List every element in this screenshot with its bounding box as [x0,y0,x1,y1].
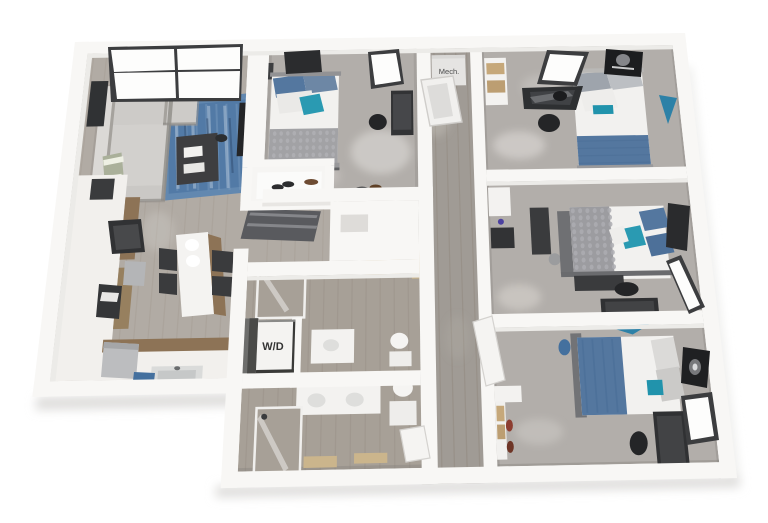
svg-text:Mech.: Mech. [439,67,459,76]
svg-text:W/D: W/D [262,341,283,353]
